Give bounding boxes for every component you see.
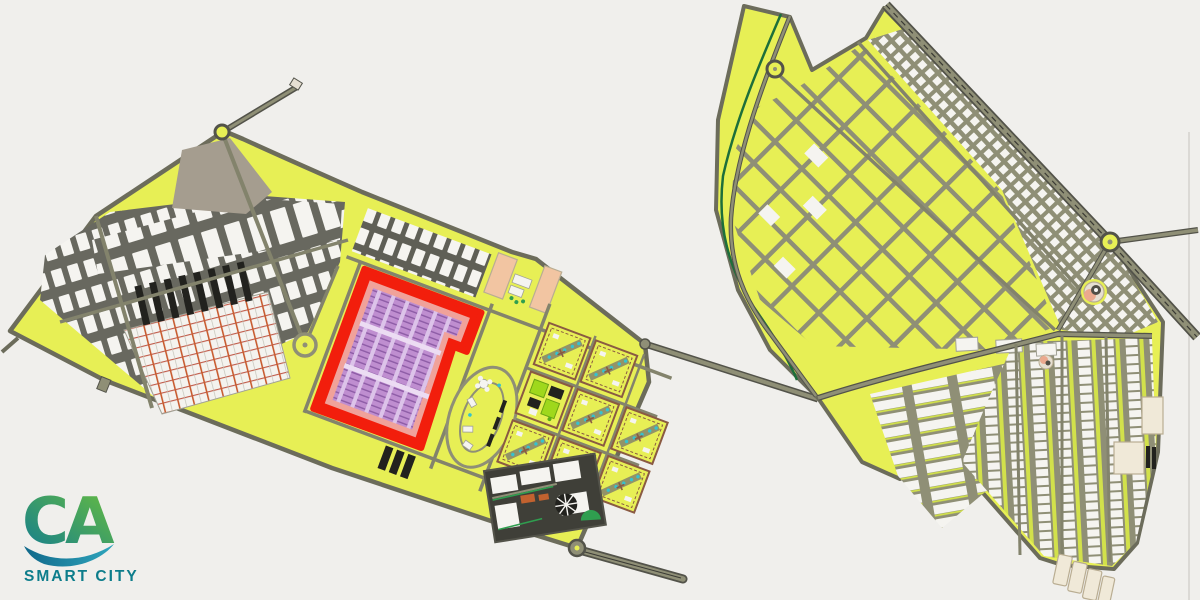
roundabout-center-dot [1108,240,1113,245]
parking-bar [1152,447,1156,469]
small-landmark [1039,355,1053,369]
junction-node [640,339,650,349]
masterplan-canvas: CA SMART CITY [0,0,1200,600]
roundabout-northwest [215,125,229,139]
roundabout-center-dot [773,67,777,71]
junction-center [575,546,580,551]
logo-mark: CA [22,485,115,559]
mosque-landmark [1081,279,1107,305]
cream-building-east [1114,442,1144,474]
cream-building-east [1142,397,1163,434]
smart-city-label: SMART CITY [24,568,139,585]
roundabout-center-dot [303,343,308,348]
masterplan-map: CA SMART CITY [0,0,1200,600]
parking-bar [1146,446,1150,468]
